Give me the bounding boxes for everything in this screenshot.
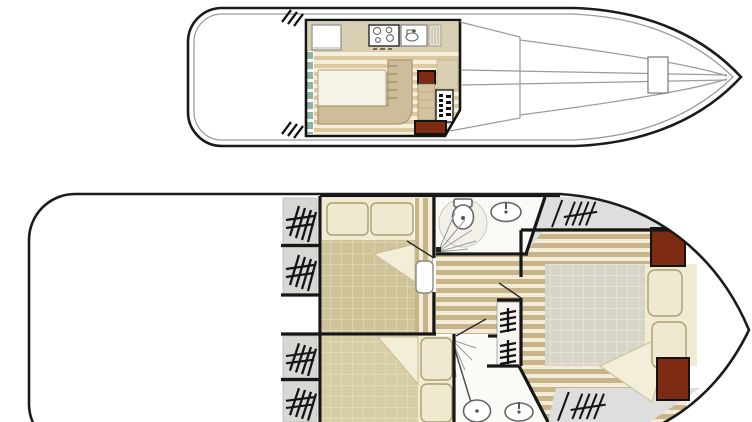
roof-hatch-icon — [648, 57, 668, 93]
helm-side-counter — [437, 60, 458, 89]
companionway-steps — [497, 302, 520, 366]
boat-floorplan-image — [0, 0, 752, 422]
fridge-unit — [312, 25, 341, 50]
drainboard — [429, 25, 441, 46]
helm-cabinet — [418, 84, 435, 120]
pillow — [648, 270, 682, 316]
pillow — [327, 203, 368, 235]
instrument-panel-icon — [436, 90, 453, 122]
pillow — [421, 384, 452, 422]
sink-icon — [401, 25, 427, 46]
saloon-interior — [306, 22, 460, 136]
pillow — [371, 203, 413, 235]
sink-icon — [491, 203, 521, 222]
toilet-icon — [464, 400, 491, 422]
saloon-cabin — [306, 20, 460, 136]
upper-deck-plan — [194, 10, 733, 140]
pillow — [421, 338, 452, 380]
port-window-panels — [283, 198, 317, 422]
boarding-steps-icon-top — [282, 10, 303, 26]
stove-icon — [369, 25, 399, 49]
boarding-steps-icon-bottom — [282, 122, 303, 138]
floorplan-canvas — [0, 0, 752, 422]
cabin-mid — [322, 336, 454, 422]
helm-cabinet-bottom — [415, 121, 446, 134]
toilet-icon — [453, 199, 474, 229]
cabin-door-panel — [416, 261, 433, 293]
sink-icon — [505, 402, 533, 421]
lower-deck-plan — [281, 196, 700, 422]
bed-quilt — [545, 264, 645, 366]
dinette-table — [318, 70, 386, 108]
helm-cabinet-top — [418, 71, 435, 84]
cabin-aft — [322, 198, 415, 334]
foredeck-sheer-lines — [462, 40, 727, 115]
corner-cabinet-aft — [657, 358, 689, 400]
